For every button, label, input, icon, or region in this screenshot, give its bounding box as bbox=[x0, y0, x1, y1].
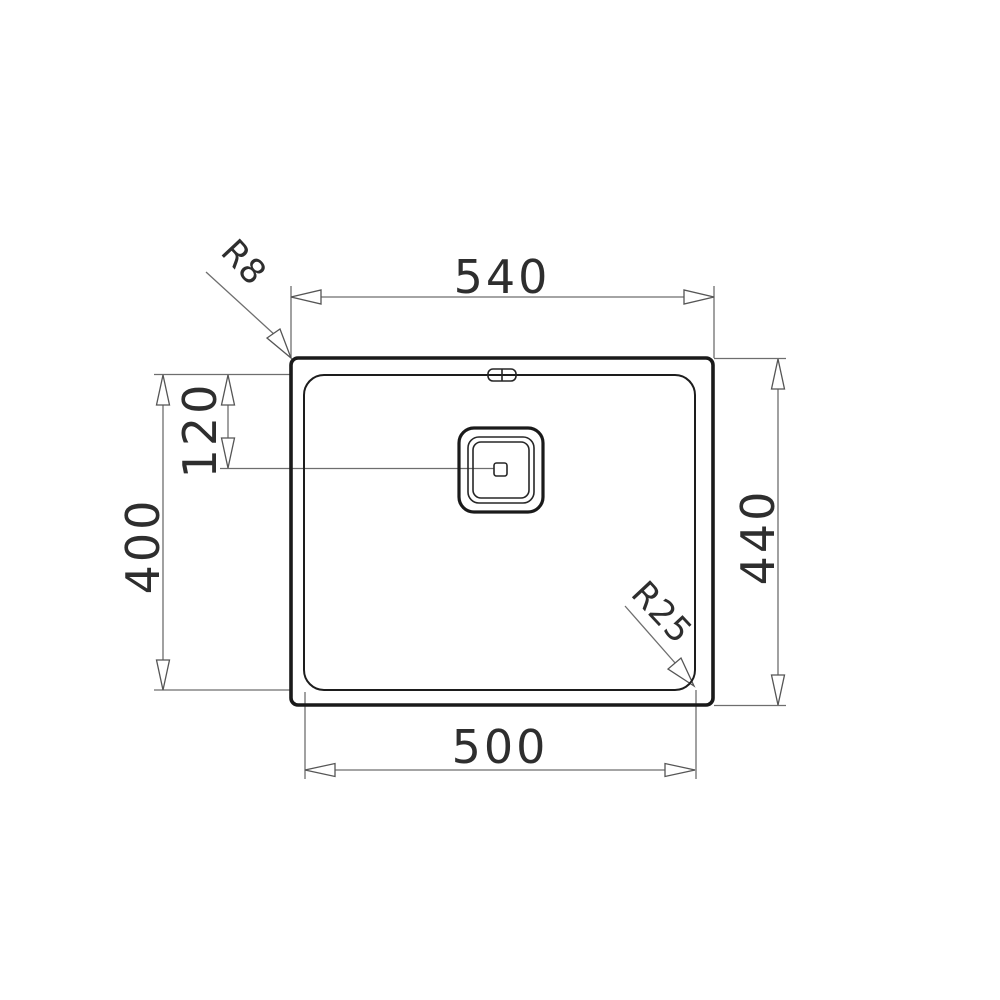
dimension-lines bbox=[154, 272, 786, 779]
drain-inner-outline-2 bbox=[473, 442, 529, 498]
dimension-labels: 540 500 400 440 120 R8 R25 bbox=[116, 232, 785, 774]
arrow-400-bottom-icon bbox=[157, 660, 170, 690]
drain-inner-outline-1 bbox=[468, 437, 534, 503]
drain-assembly bbox=[459, 428, 543, 512]
sink-dimension-drawing-page: 540 500 400 440 120 R8 R25 bbox=[0, 0, 1000, 1000]
dim-label-right-height: 440 bbox=[731, 489, 785, 586]
sink-outer-rim-outline bbox=[291, 358, 713, 705]
sink-bowl-outline bbox=[304, 375, 695, 690]
sink-technical-drawing: 540 500 400 440 120 R8 R25 bbox=[0, 0, 1000, 1000]
arrow-500-right-icon bbox=[665, 764, 695, 777]
arrow-540-right-icon bbox=[684, 290, 714, 304]
arrow-400-top-icon bbox=[157, 375, 170, 405]
drain-center-mark bbox=[494, 463, 507, 476]
arrow-440-bottom-icon bbox=[772, 675, 785, 705]
arrow-500-left-icon bbox=[305, 764, 335, 777]
dim-label-left-height: 400 bbox=[116, 498, 170, 595]
sink-outlines bbox=[291, 358, 713, 705]
dim-label-top-width: 540 bbox=[454, 250, 551, 304]
arrow-440-top-icon bbox=[772, 359, 785, 389]
arrow-r8-icon bbox=[267, 329, 291, 358]
dim-label-bowl-corner-radius: R25 bbox=[623, 574, 700, 652]
dim-label-outer-corner-radius: R8 bbox=[213, 232, 274, 294]
dim-label-bottom-width: 500 bbox=[452, 720, 549, 774]
dim-label-drain-offset: 120 bbox=[173, 382, 227, 479]
arrow-540-left-icon bbox=[291, 290, 321, 304]
